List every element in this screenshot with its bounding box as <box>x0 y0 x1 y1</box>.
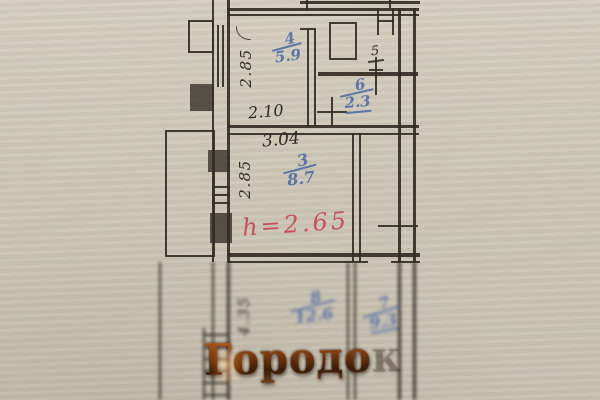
scanned-floor-plan: 2.85 2.10 3.04 2.85 5 4 5.9 6 2.3 3 8.7 … <box>0 0 600 400</box>
room-8-label: 8 12.6 <box>288 289 337 325</box>
watermark-text: Городок <box>203 328 371 397</box>
balcony-rail <box>159 262 161 400</box>
wall <box>413 262 416 400</box>
